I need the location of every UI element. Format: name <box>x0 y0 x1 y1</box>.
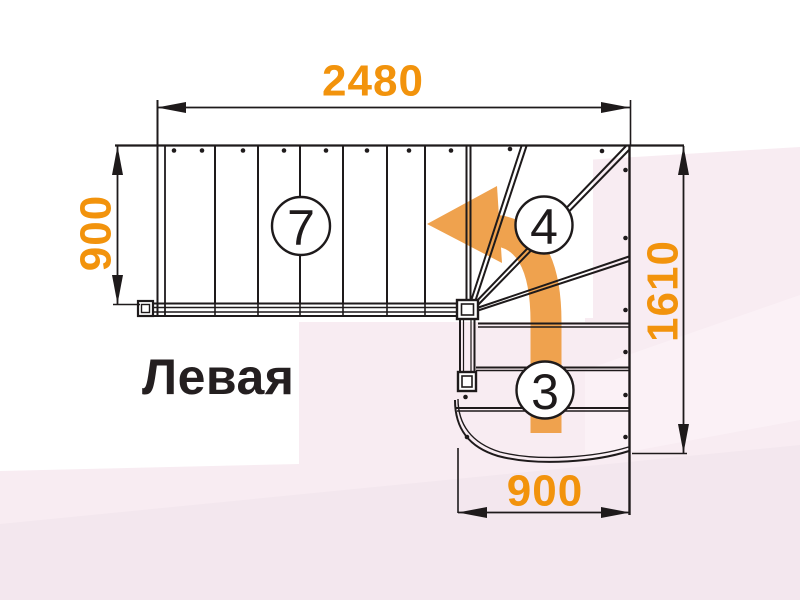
newel-post-upper-left-inner <box>142 305 150 313</box>
newel-post-winder-inner <box>462 304 474 315</box>
dim-left-depth-label: 900 <box>72 195 121 271</box>
dim-right-height-label: 1610 <box>639 240 688 342</box>
dim-bottom-width-label: 900 <box>507 467 583 516</box>
newel-post-lower-inner <box>462 376 472 387</box>
dim-top-width-label: 2480 <box>322 57 424 106</box>
diagram-title: Левая <box>142 349 294 405</box>
upper-flight-count-label: 7 <box>287 200 315 256</box>
staircase-plan-diagram: 7 4 3 2480 900 1610 <box>0 0 800 600</box>
lower-flight-count-label: 3 <box>531 364 559 420</box>
winder-count-label: 4 <box>530 199 558 255</box>
staircase-plan-page: 7 4 3 2480 900 1610 <box>0 0 800 600</box>
